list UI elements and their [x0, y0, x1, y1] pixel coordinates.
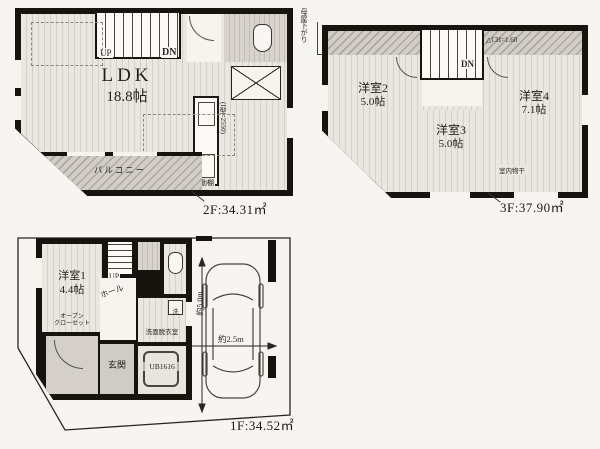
- room2-label: 洋室2 5.0帖: [336, 81, 410, 110]
- fence-bar-right-2: [268, 356, 276, 378]
- area-label-3f: 3F:37.90㎡: [500, 197, 564, 216]
- dashed-furniture: [143, 114, 235, 156]
- room1-label: 洋室1 4.4帖: [44, 270, 100, 298]
- bath-label: UB1616: [138, 362, 186, 371]
- open-closet-line1: オープン: [40, 314, 104, 321]
- open-closet-line2: クローゼット: [40, 321, 104, 328]
- toilet-icon-1f: [168, 252, 183, 274]
- room1-size: 4.4帖: [44, 284, 100, 298]
- open-closet-label: オープン クローゼット: [40, 314, 104, 327]
- washer-box: 洗: [168, 300, 183, 315]
- void-box-2f: [231, 66, 281, 100]
- ldk-label: LDK 18.8帖: [67, 64, 187, 107]
- room4-size: 7.1帖: [498, 104, 570, 118]
- house-1f: 洋室1 4.4帖 オープン クローゼット UP ホール 洗 洗面脱衣室 玄関 U…: [36, 238, 192, 400]
- window-1f-left: [36, 258, 42, 288]
- stairs-dn-label: DN: [161, 47, 177, 58]
- stairs-1f: [106, 240, 134, 276]
- roof-note-3f: 母屋下がり: [299, 8, 309, 43]
- window-right-1: [287, 108, 293, 138]
- window-1f-right: [186, 302, 192, 326]
- ldk-size: 18.8帖: [67, 88, 187, 107]
- window-3f-left: [322, 85, 328, 111]
- closet-1f: [138, 242, 160, 270]
- room4-label: 洋室4 7.1帖: [498, 89, 570, 118]
- window-left-1: [15, 60, 21, 88]
- floorplan-2f: UP DN (I型=2550) 可動棚 LDK 18.8帖 バルコニー: [15, 8, 293, 196]
- area-label-2f: 2F:34.31㎡: [203, 199, 267, 218]
- hall-3f: [422, 80, 482, 106]
- washer-label: 洗: [172, 310, 178, 316]
- area-label-1f: 1F:34.52㎡: [230, 415, 294, 434]
- drying-note: 室内物干: [498, 165, 526, 175]
- room1-name: 洋室1: [44, 270, 100, 284]
- dashed-closet: [31, 22, 103, 66]
- room4-name: 洋室4: [498, 89, 570, 104]
- toilet-icon-2f: [253, 24, 272, 52]
- floorplan-3f: △CH=1.60 DN 洋室2 5.0帖 洋室3 5.0帖 洋室4 7.1帖 室…: [322, 25, 588, 198]
- stairs-dn-label-3f: DN: [460, 59, 475, 69]
- room2-name: 洋室2: [336, 81, 410, 96]
- fence-bar-top: [196, 236, 212, 241]
- room3-name: 洋室3: [424, 123, 478, 138]
- car-width-label: 約2.5m: [217, 333, 245, 345]
- entrance-label: 玄関: [102, 358, 132, 371]
- roof-slope-left: [328, 31, 420, 55]
- room3-size: 5.0帖: [424, 138, 478, 152]
- ldk-name: LDK: [67, 64, 187, 88]
- window-3f-right: [582, 95, 588, 125]
- room2-size: 5.0帖: [336, 96, 410, 110]
- balcony-label: バルコニー: [73, 164, 167, 176]
- stairs-3f: [420, 28, 484, 80]
- room3-label: 洋室3 5.0帖: [424, 123, 478, 152]
- car-icon: [203, 264, 263, 398]
- window-3f-bottom-1: [430, 192, 470, 198]
- washroom-label: 洗面脱衣室: [136, 326, 188, 336]
- ceiling-height-note: △CH=1.60: [486, 36, 517, 44]
- window-left-2: [15, 96, 21, 120]
- fence-bar-right-1: [268, 240, 276, 282]
- car-length-label: 約5.0m: [195, 291, 206, 315]
- roof-note-line-v: [317, 22, 318, 54]
